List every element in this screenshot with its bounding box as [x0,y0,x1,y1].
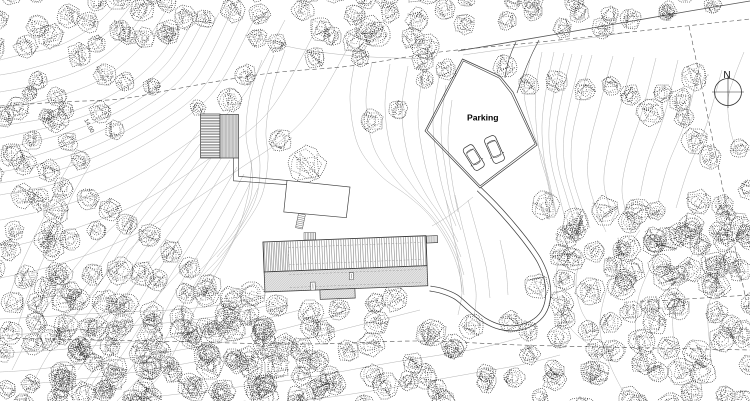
svg-text:N: N [723,70,730,81]
svg-text:Parking: Parking [467,113,499,123]
